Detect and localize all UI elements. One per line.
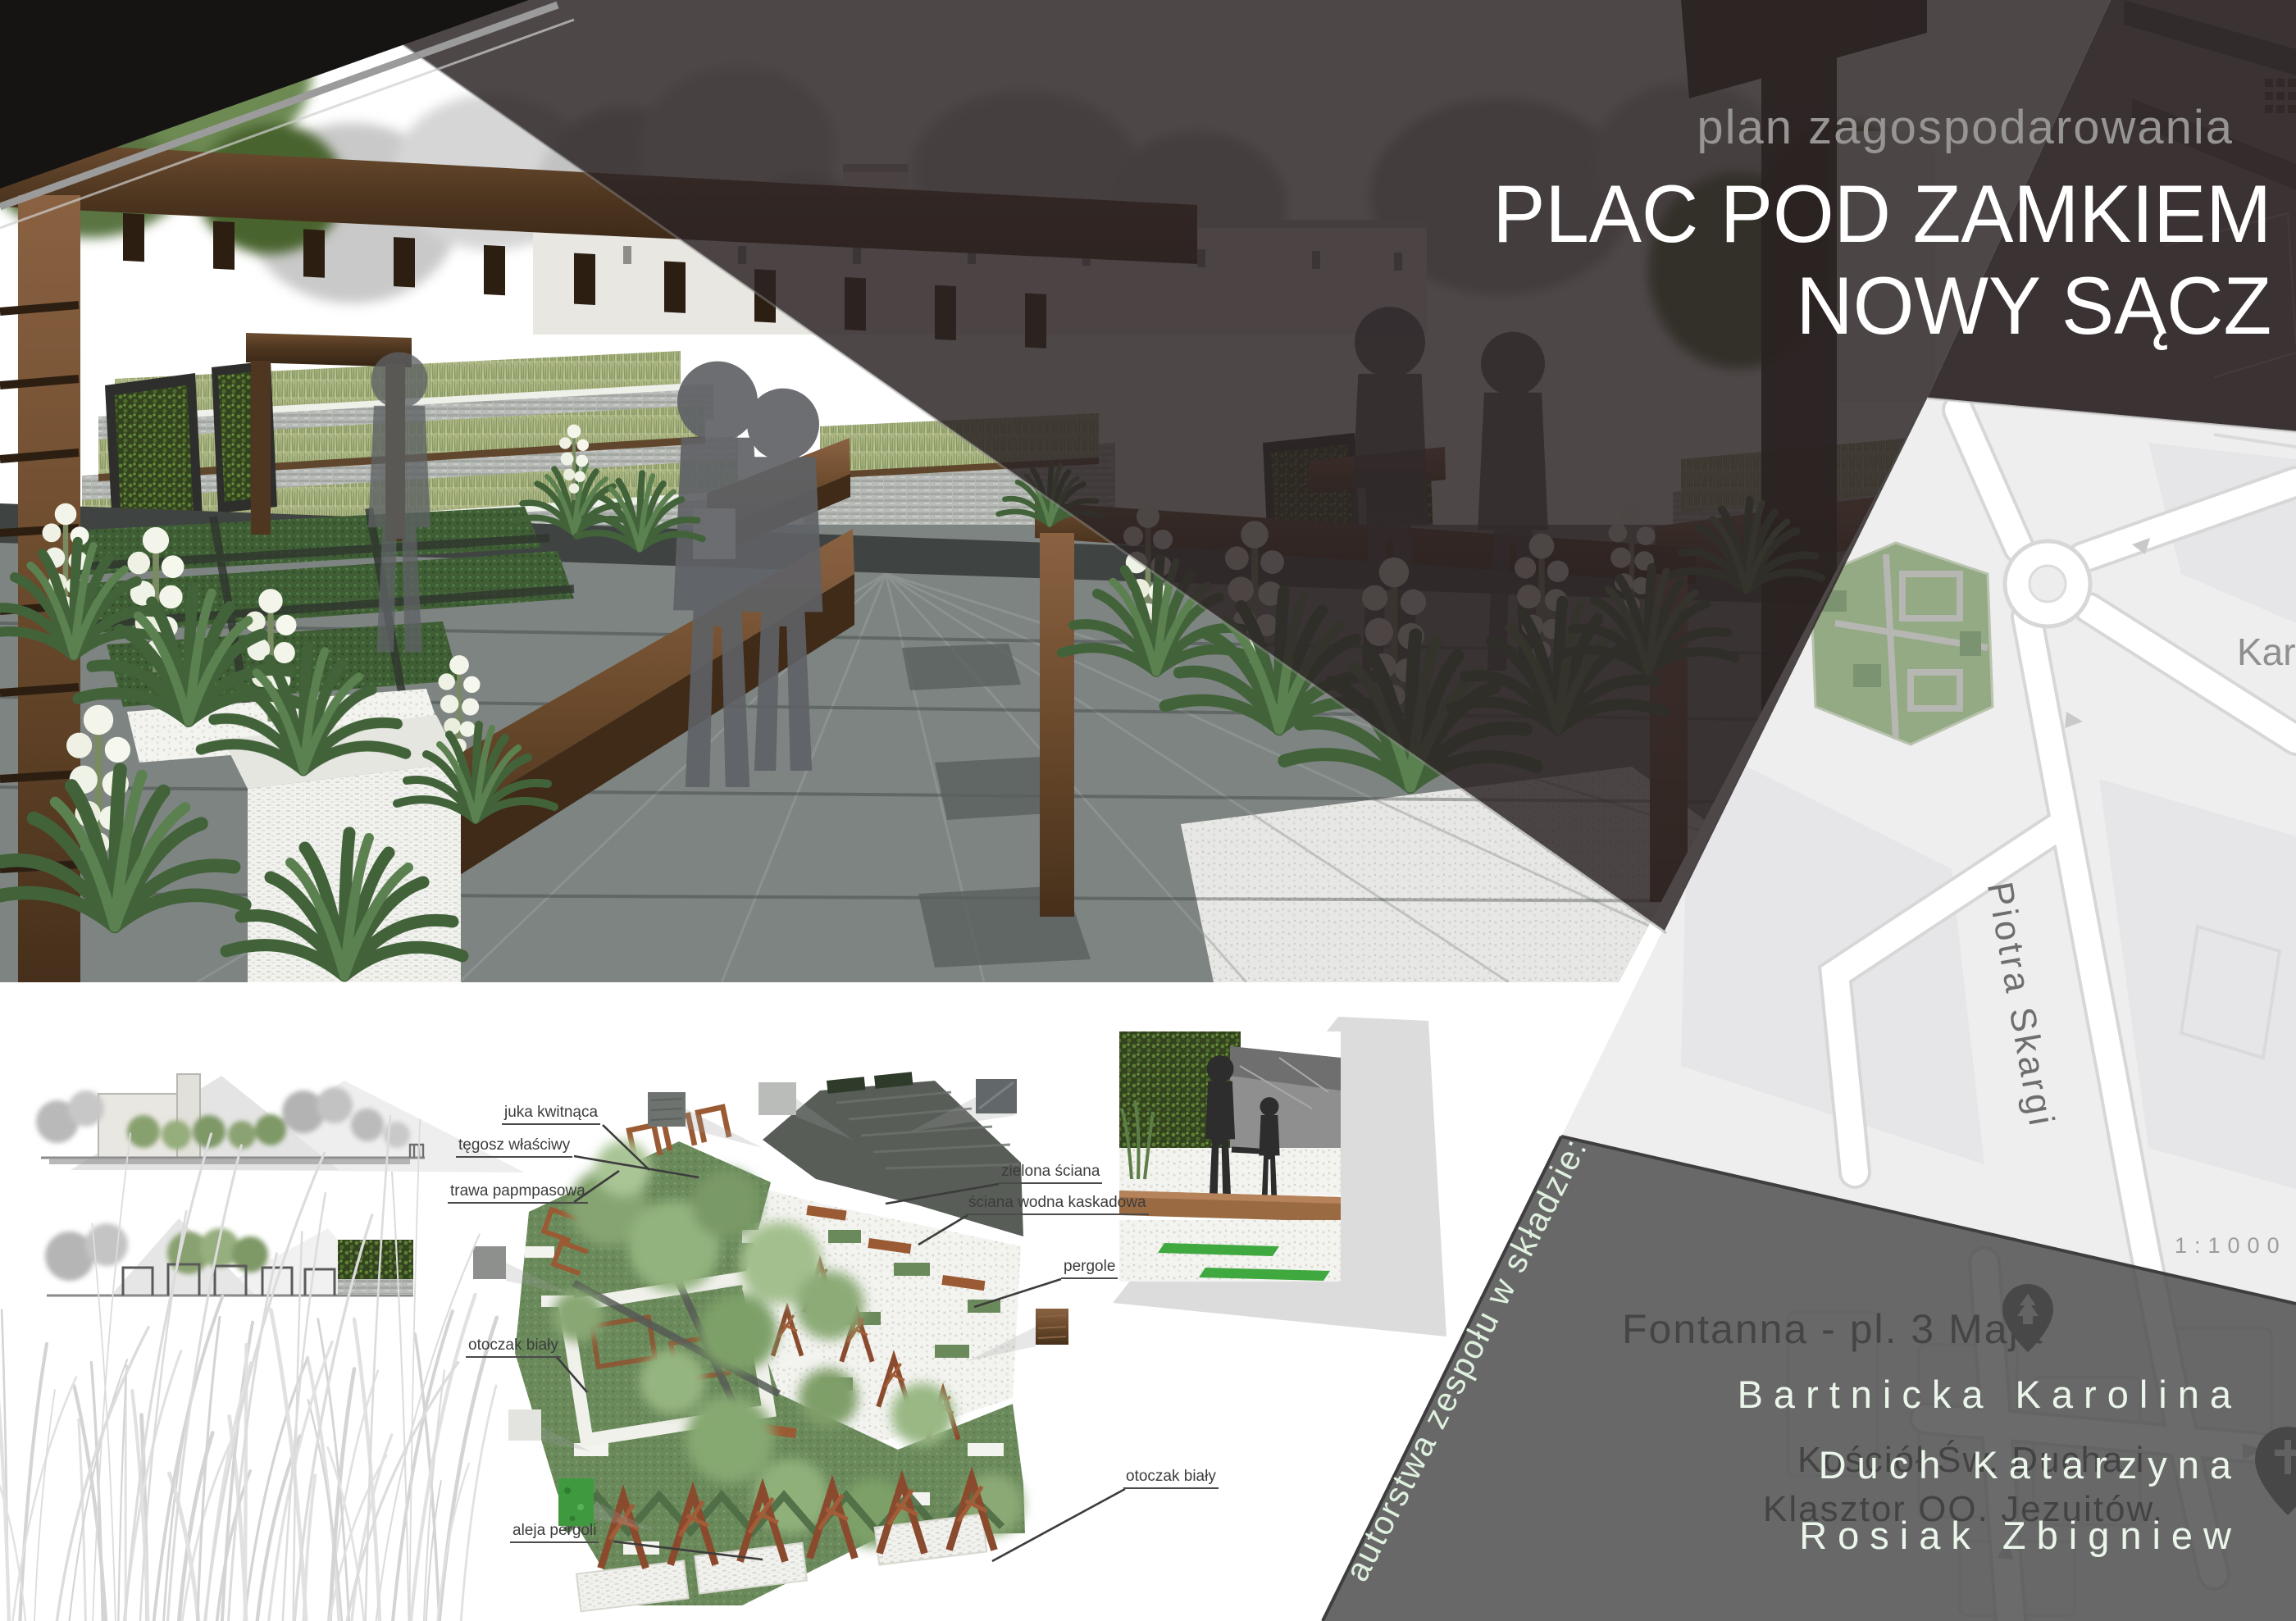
plan-label-otoczak-2: otoczak biały bbox=[1123, 1468, 1219, 1489]
plan-label-pergole: pergole bbox=[1061, 1258, 1118, 1279]
street-name-label: Piotra Skargi bbox=[1979, 879, 2062, 1132]
map-scale-label: 1:1000 bbox=[2175, 1233, 2287, 1259]
title-block: plan zagospodarowania PLAC POD ZAMKIEM N… bbox=[1469, 100, 2271, 352]
page-title-line2: NOWY SĄCZ bbox=[1492, 260, 2271, 352]
author-name-1: Bartnicka Karolina bbox=[1738, 1359, 2242, 1430]
plan-label-otoczak-1: otoczak biały bbox=[466, 1336, 561, 1358]
plan-label-zielona: zielona ściana bbox=[999, 1163, 1102, 1184]
author-name-2: Duch Katarzyna bbox=[1738, 1430, 2242, 1500]
plan-label-trawa: trawa papmpasowa bbox=[448, 1182, 588, 1204]
plan-label-sciana-wodna: ściana wodna kaskadowa bbox=[966, 1194, 1149, 1215]
author-name-3: Rosiak Zbigniew bbox=[1738, 1500, 2242, 1571]
plan-label-tegosz: tęgosz właściwy bbox=[456, 1136, 572, 1158]
author-names: Bartnicka Karolina Duch Katarzyna Rosiak… bbox=[1738, 1359, 2242, 1571]
plan-label-aleja: aleja pergoli bbox=[510, 1522, 599, 1543]
page-title-line1: PLAC POD ZAMKIEM bbox=[1492, 168, 2271, 260]
subtitle: plan zagospodarowania bbox=[1469, 100, 2234, 155]
presentation-board: Fontanna - pl. 3 Maja Kościół Św. Ducha … bbox=[0, 0, 2296, 1621]
street-name-truncated: Kar bbox=[2237, 630, 2296, 674]
plan-label-yucca: juka kwitnąca bbox=[502, 1104, 600, 1125]
